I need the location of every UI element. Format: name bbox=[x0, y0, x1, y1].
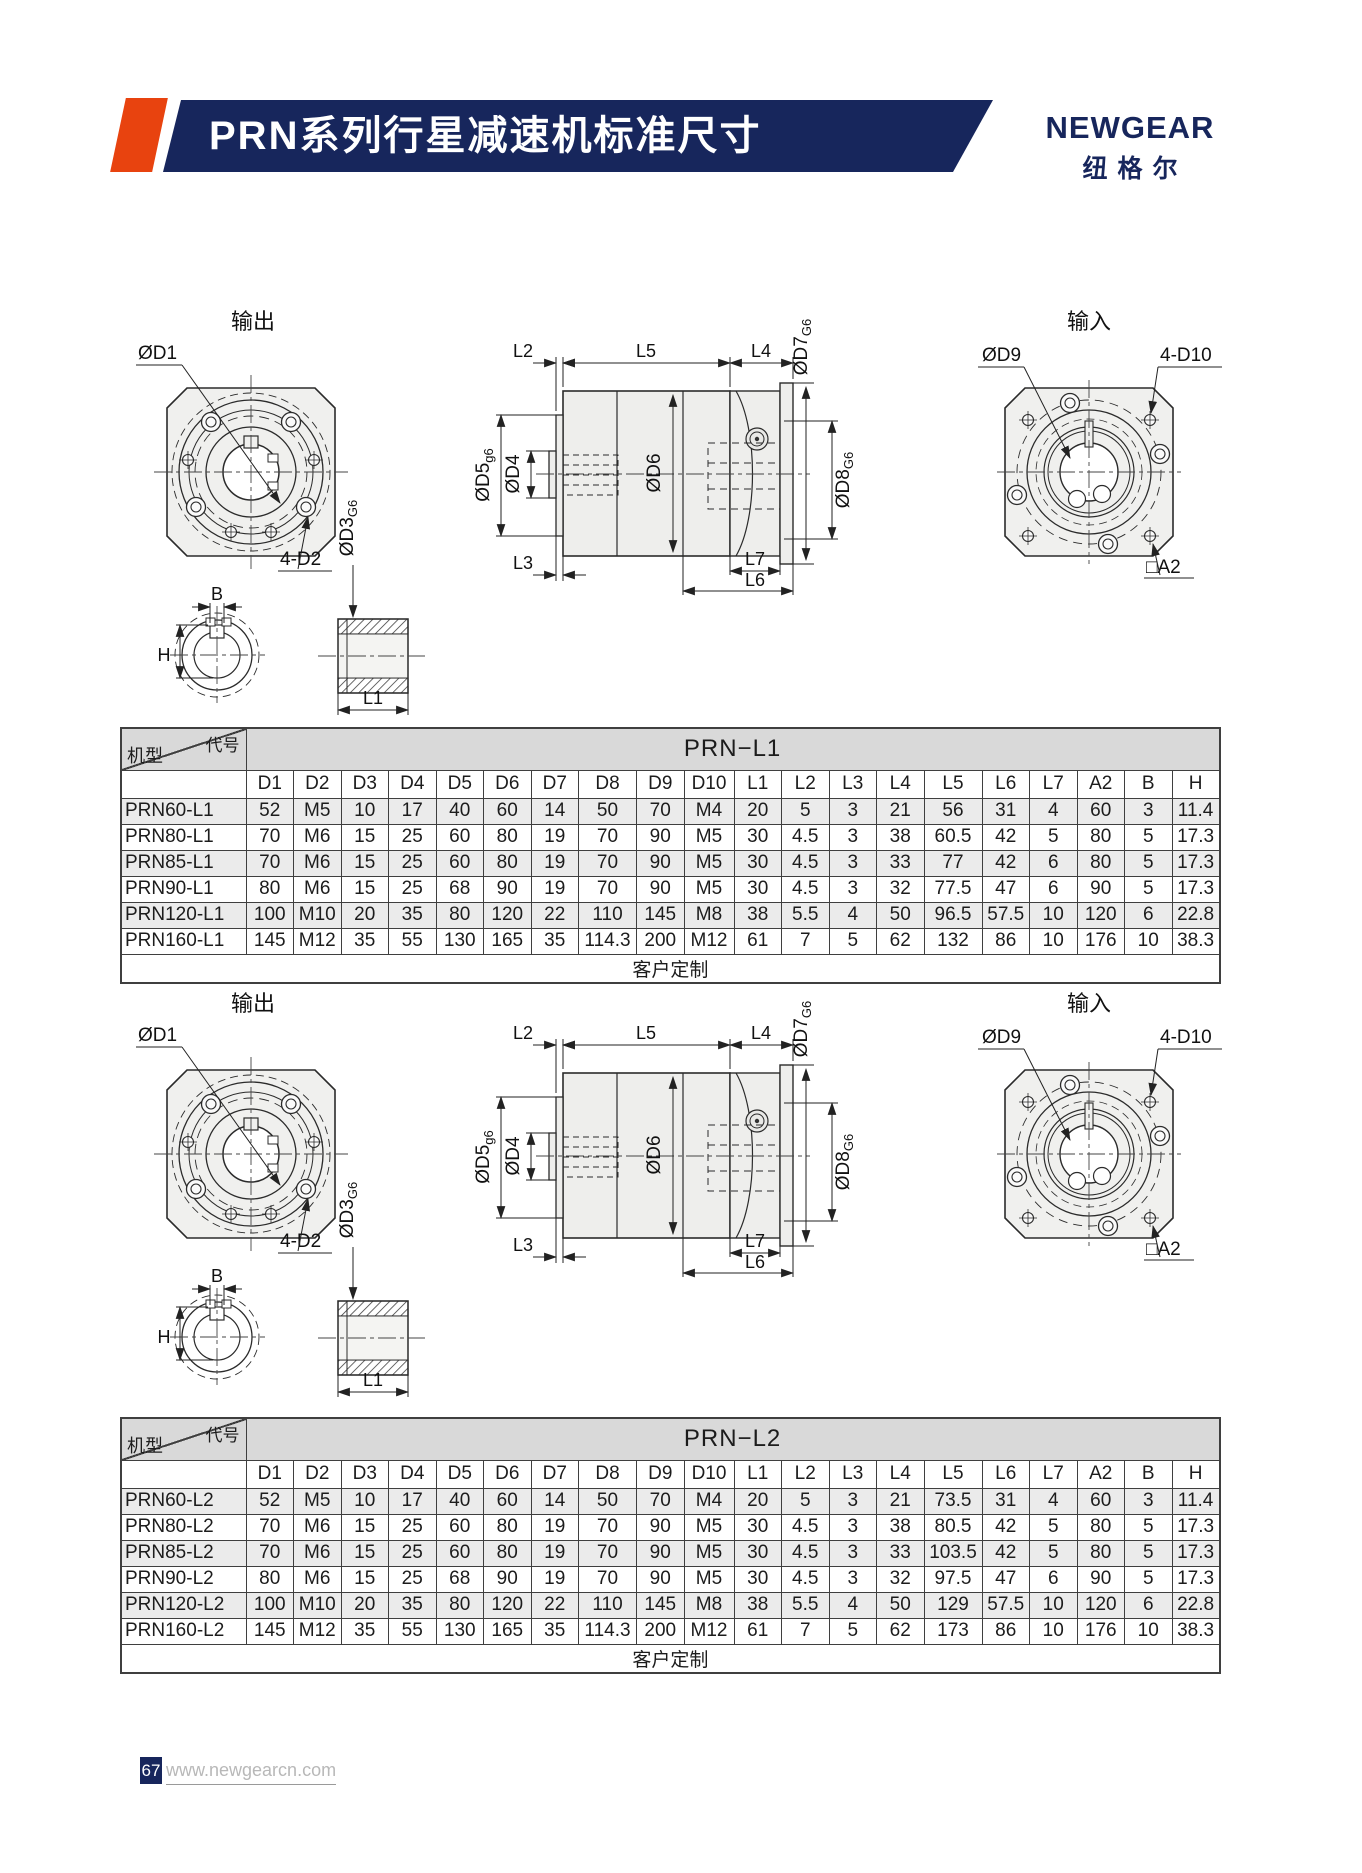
input-view-title: 输入 bbox=[1067, 991, 1111, 1016]
col-header-A2: A2 bbox=[1077, 1460, 1125, 1488]
value-cell-L3: 4 bbox=[829, 1592, 877, 1618]
value-cell-D6: 165 bbox=[484, 1618, 532, 1644]
value-cell-L7: 6 bbox=[1030, 1566, 1078, 1592]
col-header-D2: D2 bbox=[294, 1460, 342, 1488]
value-cell-D3: 20 bbox=[341, 902, 389, 928]
value-cell-D3: 15 bbox=[341, 824, 389, 850]
value-cell-L1: 38 bbox=[734, 902, 782, 928]
value-cell-L5: 73.5 bbox=[924, 1488, 982, 1514]
value-cell-L3: 3 bbox=[829, 798, 877, 824]
value-cell-L3: 3 bbox=[829, 1514, 877, 1540]
value-cell-D7: 19 bbox=[531, 1540, 579, 1566]
page-title: PRN系列行星减速机标准尺寸 bbox=[163, 100, 993, 172]
value-cell-L4: 33 bbox=[877, 1540, 925, 1566]
value-cell-D1: 100 bbox=[246, 1592, 294, 1618]
value-cell-L4: 62 bbox=[877, 928, 925, 954]
value-cell-D7: 35 bbox=[531, 1618, 579, 1644]
value-cell-L3: 3 bbox=[829, 1488, 877, 1514]
corner-label-code: 代号 bbox=[206, 731, 240, 756]
value-cell-A2: 60 bbox=[1077, 798, 1125, 824]
value-cell-L4: 38 bbox=[877, 1514, 925, 1540]
value-cell-B: 6 bbox=[1125, 902, 1173, 928]
value-cell-L6: 42 bbox=[982, 1514, 1030, 1540]
table-row: PRN85-L270M615256080197090M5304.5333103.… bbox=[121, 1540, 1220, 1566]
value-cell-D7: 22 bbox=[531, 902, 579, 928]
col-header-H: H bbox=[1172, 1460, 1220, 1488]
value-cell-L1: 20 bbox=[734, 1488, 782, 1514]
col-header-D8: D8 bbox=[579, 1460, 637, 1488]
value-cell-D6: 80 bbox=[484, 824, 532, 850]
value-cell-D3: 35 bbox=[341, 1618, 389, 1644]
value-cell-D5: 60 bbox=[436, 824, 484, 850]
value-cell-H: 17.3 bbox=[1172, 1514, 1220, 1540]
value-cell-D4: 17 bbox=[389, 1488, 437, 1514]
label-l4: L4 bbox=[751, 341, 771, 361]
col-header-L7: L7 bbox=[1030, 770, 1078, 798]
col-header-B: B bbox=[1125, 770, 1173, 798]
value-cell-B: 5 bbox=[1125, 876, 1173, 902]
value-cell-D8: 50 bbox=[579, 1488, 637, 1514]
col-header-L4: L4 bbox=[877, 770, 925, 798]
value-cell-D4: 55 bbox=[389, 1618, 437, 1644]
value-cell-L6: 42 bbox=[982, 824, 1030, 850]
value-cell-L6: 57.5 bbox=[982, 1592, 1030, 1618]
value-cell-D1: 70 bbox=[246, 1514, 294, 1540]
value-cell-L2: 7 bbox=[782, 1618, 830, 1644]
value-cell-L6: 42 bbox=[982, 850, 1030, 876]
value-cell-D3: 15 bbox=[341, 876, 389, 902]
value-cell-D3: 15 bbox=[341, 1566, 389, 1592]
value-cell-D5: 60 bbox=[436, 850, 484, 876]
label-4-d10: 4-D10 bbox=[1160, 1027, 1212, 1048]
value-cell-D3: 35 bbox=[341, 928, 389, 954]
value-cell-L2: 4.5 bbox=[782, 876, 830, 902]
label-od5: ØD5g6 bbox=[473, 448, 496, 502]
col-header-D9: D9 bbox=[637, 1460, 685, 1488]
value-cell-D2: M6 bbox=[294, 1566, 342, 1592]
value-cell-D9: 200 bbox=[637, 1618, 685, 1644]
value-cell-D10: M12 bbox=[684, 1618, 734, 1644]
col-header-D8: D8 bbox=[579, 770, 637, 798]
value-cell-B: 3 bbox=[1125, 798, 1173, 824]
value-cell-D9: 90 bbox=[637, 824, 685, 850]
value-cell-L1: 30 bbox=[734, 824, 782, 850]
value-cell-D2: M5 bbox=[294, 1488, 342, 1514]
value-cell-L2: 4.5 bbox=[782, 1566, 830, 1592]
col-header-L3: L3 bbox=[829, 770, 877, 798]
value-cell-D5: 60 bbox=[436, 1514, 484, 1540]
value-cell-D7: 19 bbox=[531, 824, 579, 850]
value-cell-L3: 5 bbox=[829, 1618, 877, 1644]
value-cell-D1: 52 bbox=[246, 798, 294, 824]
value-cell-D4: 25 bbox=[389, 1540, 437, 1566]
value-cell-L4: 38 bbox=[877, 824, 925, 850]
value-cell-D8: 70 bbox=[579, 1566, 637, 1592]
col-header-D9: D9 bbox=[637, 770, 685, 798]
technical-drawing-set-1: 输出 ØD1 4-D2 B H ØD3G6 L1 bbox=[120, 303, 1250, 723]
value-cell-D10: M5 bbox=[684, 1566, 734, 1592]
col-header-D7: D7 bbox=[531, 770, 579, 798]
series-title: PRN−L1 bbox=[246, 728, 1220, 770]
label-l6: L6 bbox=[745, 1252, 765, 1272]
dimension-table-PRN−L2: 代号机型PRN−L2D1D2D3D4D5D6D7D8D9D10L1L2L3L4L… bbox=[120, 1417, 1221, 1674]
output-view-title: 输出 bbox=[231, 309, 275, 334]
value-cell-D4: 35 bbox=[389, 902, 437, 928]
value-cell-L1: 30 bbox=[734, 876, 782, 902]
value-cell-D3: 10 bbox=[341, 798, 389, 824]
value-cell-D9: 90 bbox=[637, 1566, 685, 1592]
value-cell-H: 38.3 bbox=[1172, 928, 1220, 954]
value-cell-D9: 90 bbox=[637, 876, 685, 902]
value-cell-H: 22.8 bbox=[1172, 902, 1220, 928]
value-cell-L6: 31 bbox=[982, 798, 1030, 824]
value-cell-A2: 80 bbox=[1077, 824, 1125, 850]
value-cell-D6: 60 bbox=[484, 1488, 532, 1514]
value-cell-D6: 120 bbox=[484, 1592, 532, 1618]
table-row: PRN60-L252M510174060145070M420532173.531… bbox=[121, 1488, 1220, 1514]
value-cell-B: 6 bbox=[1125, 1592, 1173, 1618]
col-header-D6: D6 bbox=[484, 770, 532, 798]
value-cell-L1: 30 bbox=[734, 1566, 782, 1592]
value-cell-L1: 61 bbox=[734, 928, 782, 954]
model-cell: PRN120-L2 bbox=[121, 1592, 246, 1618]
value-cell-D1: 70 bbox=[246, 850, 294, 876]
value-cell-D2: M6 bbox=[294, 850, 342, 876]
col-header-D7: D7 bbox=[531, 1460, 579, 1488]
col-header-D3: D3 bbox=[341, 770, 389, 798]
value-cell-H: 11.4 bbox=[1172, 798, 1220, 824]
brand-name: NEWGEAR bbox=[1018, 110, 1242, 146]
value-cell-D7: 14 bbox=[531, 1488, 579, 1514]
label-l7: L7 bbox=[745, 549, 765, 569]
value-cell-D10: M5 bbox=[684, 876, 734, 902]
value-cell-D10: M12 bbox=[684, 928, 734, 954]
output-flange-view: 输出 ØD1 4-D2 bbox=[136, 309, 348, 571]
value-cell-D10: M8 bbox=[684, 902, 734, 928]
value-cell-D7: 35 bbox=[531, 928, 579, 954]
value-cell-B: 10 bbox=[1125, 1618, 1173, 1644]
value-cell-D10: M5 bbox=[684, 1514, 734, 1540]
value-cell-D5: 40 bbox=[436, 1488, 484, 1514]
value-cell-D3: 15 bbox=[341, 1540, 389, 1566]
value-cell-D9: 90 bbox=[637, 850, 685, 876]
label-a2: □A2 bbox=[1146, 1239, 1181, 1260]
value-cell-D5: 68 bbox=[436, 1566, 484, 1592]
label-od5: ØD5g6 bbox=[473, 1130, 496, 1184]
model-cell: PRN90-L1 bbox=[121, 876, 246, 902]
value-cell-D3: 10 bbox=[341, 1488, 389, 1514]
col-header-L2: L2 bbox=[782, 1460, 830, 1488]
value-cell-L5: 173 bbox=[924, 1618, 982, 1644]
model-cell: PRN90-L2 bbox=[121, 1566, 246, 1592]
label-od8: ØD8G6 bbox=[833, 452, 856, 508]
custom-order-note: 客户定制 bbox=[121, 1644, 1220, 1673]
value-cell-D7: 14 bbox=[531, 798, 579, 824]
value-cell-D9: 70 bbox=[637, 1488, 685, 1514]
table-row: PRN85-L170M615256080197090M5304.53337742… bbox=[121, 850, 1220, 876]
label-l5: L5 bbox=[636, 341, 656, 361]
col-header-D2: D2 bbox=[294, 770, 342, 798]
value-cell-D5: 130 bbox=[436, 1618, 484, 1644]
value-cell-D1: 70 bbox=[246, 1540, 294, 1566]
value-cell-L5: 80.5 bbox=[924, 1514, 982, 1540]
value-cell-D4: 25 bbox=[389, 876, 437, 902]
col-header-D4: D4 bbox=[389, 770, 437, 798]
model-cell: PRN60-L2 bbox=[121, 1488, 246, 1514]
value-cell-D5: 130 bbox=[436, 928, 484, 954]
value-cell-B: 5 bbox=[1125, 1566, 1173, 1592]
value-cell-D1: 70 bbox=[246, 824, 294, 850]
table-row: PRN80-L170M615256080197090M5304.533860.5… bbox=[121, 824, 1220, 850]
model-cell: PRN85-L1 bbox=[121, 850, 246, 876]
value-cell-L7: 10 bbox=[1030, 902, 1078, 928]
header-accent-slash bbox=[110, 98, 168, 172]
value-cell-L7: 10 bbox=[1030, 1618, 1078, 1644]
col-header-D10: D10 bbox=[684, 770, 734, 798]
input-flange-view: 输入 ØD9 4-D10 □A2 bbox=[978, 309, 1222, 578]
value-cell-D8: 70 bbox=[579, 1540, 637, 1566]
value-cell-L6: 57.5 bbox=[982, 902, 1030, 928]
value-cell-D2: M6 bbox=[294, 824, 342, 850]
value-cell-L4: 33 bbox=[877, 850, 925, 876]
value-cell-L5: 56 bbox=[924, 798, 982, 824]
value-cell-D7: 19 bbox=[531, 1514, 579, 1540]
value-cell-L1: 30 bbox=[734, 850, 782, 876]
value-cell-D2: M5 bbox=[294, 798, 342, 824]
value-cell-D6: 120 bbox=[484, 902, 532, 928]
page-footer: 67 www.newgearcn.com bbox=[140, 1757, 336, 1785]
model-cell: PRN60-L1 bbox=[121, 798, 246, 824]
value-cell-L6: 86 bbox=[982, 1618, 1030, 1644]
value-cell-D8: 110 bbox=[579, 902, 637, 928]
value-cell-A2: 120 bbox=[1077, 1592, 1125, 1618]
value-cell-D1: 145 bbox=[246, 928, 294, 954]
key-section-view: B H bbox=[158, 584, 266, 703]
label-l3: L3 bbox=[513, 553, 533, 573]
value-cell-L5: 77.5 bbox=[924, 876, 982, 902]
corner-header-cell: 代号机型 bbox=[121, 728, 246, 770]
label-h: H bbox=[158, 1327, 171, 1347]
value-cell-D10: M5 bbox=[684, 850, 734, 876]
value-cell-D7: 19 bbox=[531, 876, 579, 902]
value-cell-A2: 80 bbox=[1077, 1540, 1125, 1566]
value-cell-L1: 30 bbox=[734, 1514, 782, 1540]
input-view-title: 输入 bbox=[1067, 309, 1111, 334]
value-cell-D8: 50 bbox=[579, 798, 637, 824]
brand-name-cn: 纽格尔 bbox=[1018, 149, 1242, 185]
value-cell-D8: 70 bbox=[579, 824, 637, 850]
value-cell-H: 17.3 bbox=[1172, 850, 1220, 876]
value-cell-D6: 90 bbox=[484, 1566, 532, 1592]
value-cell-D10: M5 bbox=[684, 824, 734, 850]
value-cell-D8: 114.3 bbox=[579, 928, 637, 954]
value-cell-D10: M5 bbox=[684, 1540, 734, 1566]
value-cell-L2: 5 bbox=[782, 1488, 830, 1514]
value-cell-L7: 5 bbox=[1030, 824, 1078, 850]
value-cell-L2: 4.5 bbox=[782, 850, 830, 876]
table-row: PRN160-L2145M12355513016535114.3200M1261… bbox=[121, 1618, 1220, 1644]
value-cell-D9: 90 bbox=[637, 1540, 685, 1566]
value-cell-D5: 40 bbox=[436, 798, 484, 824]
value-cell-D2: M12 bbox=[294, 928, 342, 954]
value-cell-D10: M4 bbox=[684, 798, 734, 824]
label-od3: ØD3G6 bbox=[337, 1182, 360, 1238]
col-header-D5: D5 bbox=[436, 1460, 484, 1488]
value-cell-L4: 21 bbox=[877, 1488, 925, 1514]
table-row: PRN160-L1145M12355513016535114.3200M1261… bbox=[121, 928, 1220, 954]
value-cell-L5: 77 bbox=[924, 850, 982, 876]
col-header-D10: D10 bbox=[684, 1460, 734, 1488]
value-cell-L2: 5.5 bbox=[782, 1592, 830, 1618]
value-cell-L6: 86 bbox=[982, 928, 1030, 954]
value-cell-L4: 50 bbox=[877, 1592, 925, 1618]
value-cell-L3: 3 bbox=[829, 1540, 877, 1566]
table-row: PRN120-L2100M1020358012022110145M8385.54… bbox=[121, 1592, 1220, 1618]
output-flange-view: 输出 ØD1 4-D2 bbox=[136, 991, 348, 1253]
value-cell-A2: 176 bbox=[1077, 928, 1125, 954]
table-row: PRN60-L152M510174060145070M4205321563146… bbox=[121, 798, 1220, 824]
value-cell-D7: 22 bbox=[531, 1592, 579, 1618]
label-od7: ØD7G6 bbox=[791, 319, 814, 375]
value-cell-A2: 120 bbox=[1077, 902, 1125, 928]
value-cell-D4: 25 bbox=[389, 1566, 437, 1592]
corner-label-model: 机型 bbox=[127, 742, 163, 768]
value-cell-D8: 70 bbox=[579, 1514, 637, 1540]
label-a2: □A2 bbox=[1146, 557, 1181, 578]
label-od1: ØD1 bbox=[138, 1025, 177, 1046]
value-cell-L5: 60.5 bbox=[924, 824, 982, 850]
value-cell-D5: 80 bbox=[436, 1592, 484, 1618]
value-cell-D3: 20 bbox=[341, 1592, 389, 1618]
col-header-L2: L2 bbox=[782, 770, 830, 798]
col-header-L6: L6 bbox=[982, 1460, 1030, 1488]
value-cell-A2: 176 bbox=[1077, 1618, 1125, 1644]
col-header-D5: D5 bbox=[436, 770, 484, 798]
label-4-d10: 4-D10 bbox=[1160, 345, 1212, 366]
label-od1: ØD1 bbox=[138, 343, 177, 364]
value-cell-L2: 4.5 bbox=[782, 1514, 830, 1540]
catalog-page: PRN系列行星减速机标准尺寸 NEWGEAR 纽格尔 输出 ØD1 4-D2 B… bbox=[0, 0, 1362, 1873]
series-title: PRN−L2 bbox=[246, 1418, 1220, 1460]
label-l1: L1 bbox=[363, 688, 383, 708]
col-header-L1: L1 bbox=[734, 770, 782, 798]
value-cell-D6: 90 bbox=[484, 876, 532, 902]
value-cell-L1: 20 bbox=[734, 798, 782, 824]
table-row: PRN120-L1100M1020358012022110145M8385.54… bbox=[121, 902, 1220, 928]
value-cell-L3: 5 bbox=[829, 928, 877, 954]
brand-logo: NEWGEAR 纽格尔 bbox=[1018, 110, 1242, 185]
value-cell-D5: 60 bbox=[436, 1540, 484, 1566]
value-cell-L3: 3 bbox=[829, 1566, 877, 1592]
value-cell-L6: 42 bbox=[982, 1540, 1030, 1566]
value-cell-L7: 10 bbox=[1030, 1592, 1078, 1618]
value-cell-D7: 19 bbox=[531, 850, 579, 876]
website-url[interactable]: www.newgearcn.com bbox=[166, 1757, 336, 1785]
value-cell-L5: 132 bbox=[924, 928, 982, 954]
value-cell-A2: 90 bbox=[1077, 1566, 1125, 1592]
value-cell-D6: 80 bbox=[484, 1540, 532, 1566]
value-cell-D3: 15 bbox=[341, 850, 389, 876]
model-cell: PRN120-L1 bbox=[121, 902, 246, 928]
value-cell-L1: 30 bbox=[734, 1540, 782, 1566]
value-cell-D8: 70 bbox=[579, 850, 637, 876]
custom-order-note: 客户定制 bbox=[121, 954, 1220, 983]
col-header-D3: D3 bbox=[341, 1460, 389, 1488]
value-cell-L3: 4 bbox=[829, 902, 877, 928]
label-4-d2: 4-D2 bbox=[280, 1231, 321, 1252]
value-cell-L7: 5 bbox=[1030, 1540, 1078, 1566]
value-cell-D9: 145 bbox=[637, 902, 685, 928]
col-header-B: B bbox=[1125, 1460, 1173, 1488]
value-cell-D1: 145 bbox=[246, 1618, 294, 1644]
side-section-view: L2 L5 L4 ØD7G6 ØD8G6 ØD5g6 ØD4 ØD6 L3 L7… bbox=[473, 319, 856, 595]
value-cell-L4: 62 bbox=[877, 1618, 925, 1644]
col-header-L7: L7 bbox=[1030, 1460, 1078, 1488]
value-cell-D6: 80 bbox=[484, 1514, 532, 1540]
col-header-D1: D1 bbox=[246, 1460, 294, 1488]
label-l3: L3 bbox=[513, 1235, 533, 1255]
value-cell-L4: 32 bbox=[877, 876, 925, 902]
model-cell: PRN80-L2 bbox=[121, 1514, 246, 1540]
table-row: PRN90-L280M615256890197090M5304.533297.5… bbox=[121, 1566, 1220, 1592]
label-l2: L2 bbox=[513, 1023, 533, 1043]
value-cell-A2: 80 bbox=[1077, 850, 1125, 876]
col-header-A2: A2 bbox=[1077, 770, 1125, 798]
value-cell-D9: 145 bbox=[637, 1592, 685, 1618]
page-number: 67 bbox=[140, 1757, 162, 1784]
model-cell: PRN80-L1 bbox=[121, 824, 246, 850]
value-cell-L6: 47 bbox=[982, 876, 1030, 902]
value-cell-L3: 3 bbox=[829, 876, 877, 902]
col-header-L6: L6 bbox=[982, 770, 1030, 798]
value-cell-D5: 68 bbox=[436, 876, 484, 902]
value-cell-B: 5 bbox=[1125, 850, 1173, 876]
value-cell-L2: 5.5 bbox=[782, 902, 830, 928]
model-cell: PRN160-L1 bbox=[121, 928, 246, 954]
value-cell-D4: 25 bbox=[389, 1514, 437, 1540]
label-l1: L1 bbox=[363, 1370, 383, 1390]
value-cell-D4: 17 bbox=[389, 798, 437, 824]
value-cell-D4: 35 bbox=[389, 1592, 437, 1618]
label-od9: ØD9 bbox=[982, 345, 1021, 366]
value-cell-L4: 50 bbox=[877, 902, 925, 928]
col-header-L3: L3 bbox=[829, 1460, 877, 1488]
blank-header-cell bbox=[121, 770, 246, 798]
col-header-L5: L5 bbox=[924, 770, 982, 798]
value-cell-A2: 90 bbox=[1077, 876, 1125, 902]
value-cell-D1: 80 bbox=[246, 876, 294, 902]
label-l5: L5 bbox=[636, 1023, 656, 1043]
value-cell-L6: 31 bbox=[982, 1488, 1030, 1514]
value-cell-L2: 4.5 bbox=[782, 824, 830, 850]
value-cell-D10: M8 bbox=[684, 1592, 734, 1618]
label-od3: ØD3G6 bbox=[337, 500, 360, 556]
value-cell-L2: 7 bbox=[782, 928, 830, 954]
model-cell: PRN85-L2 bbox=[121, 1540, 246, 1566]
value-cell-L4: 32 bbox=[877, 1566, 925, 1592]
value-cell-D6: 60 bbox=[484, 798, 532, 824]
value-cell-L7: 4 bbox=[1030, 1488, 1078, 1514]
value-cell-D2: M12 bbox=[294, 1618, 342, 1644]
value-cell-D2: M6 bbox=[294, 1540, 342, 1566]
value-cell-H: 38.3 bbox=[1172, 1618, 1220, 1644]
label-od6: ØD6 bbox=[644, 1135, 665, 1174]
value-cell-H: 17.3 bbox=[1172, 1566, 1220, 1592]
dimension-table-PRN−L1: 代号机型PRN−L1D1D2D3D4D5D6D7D8D9D10L1L2L3L4L… bbox=[120, 727, 1221, 984]
value-cell-L5: 103.5 bbox=[924, 1540, 982, 1566]
label-b: B bbox=[211, 584, 223, 604]
value-cell-H: 17.3 bbox=[1172, 1540, 1220, 1566]
